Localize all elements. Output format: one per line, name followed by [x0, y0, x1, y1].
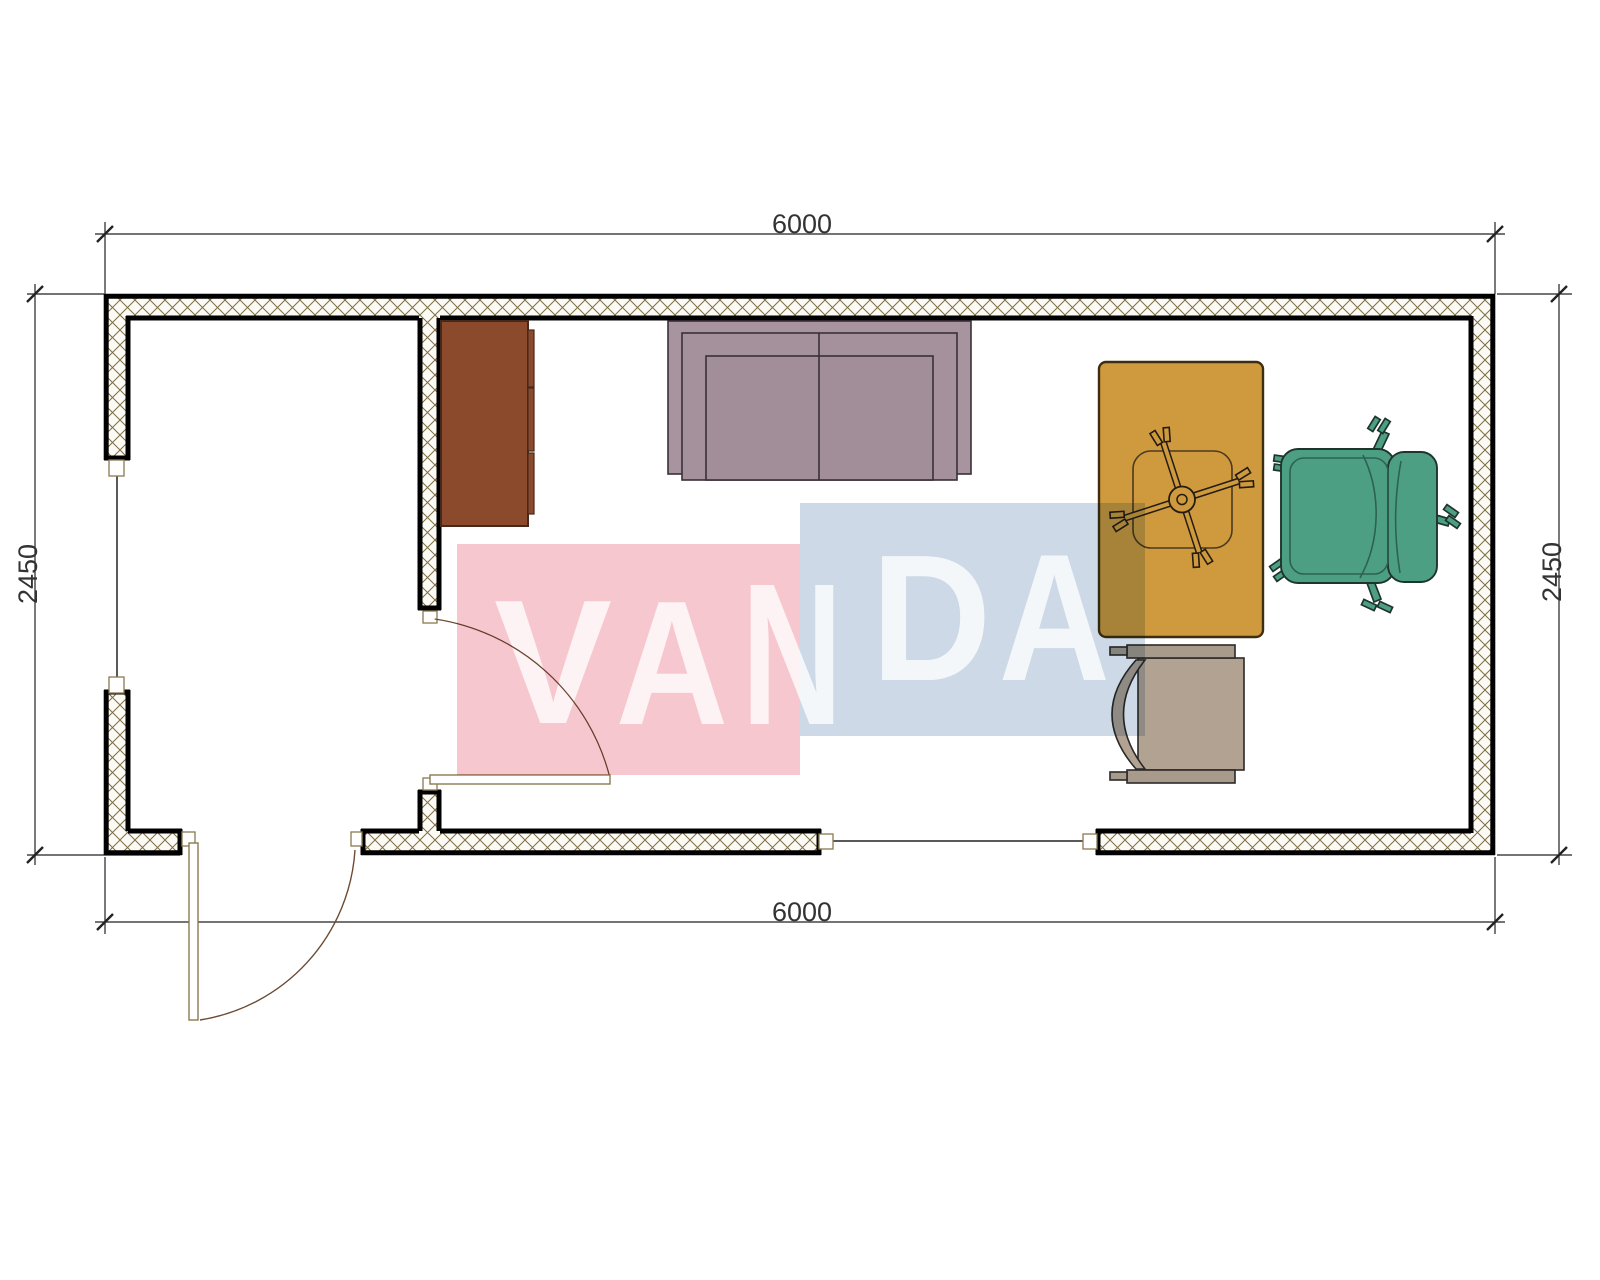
svg-text:A: A — [999, 516, 1110, 718]
svg-text:A: A — [616, 565, 729, 762]
svg-text:D: D — [871, 517, 992, 718]
svg-text:6000: 6000 — [772, 209, 832, 239]
svg-text:6000: 6000 — [772, 897, 832, 927]
svg-text:V: V — [494, 563, 612, 761]
svg-text:N: N — [741, 542, 842, 767]
svg-text:2450: 2450 — [1537, 542, 1567, 602]
svg-text:2450: 2450 — [13, 544, 43, 604]
